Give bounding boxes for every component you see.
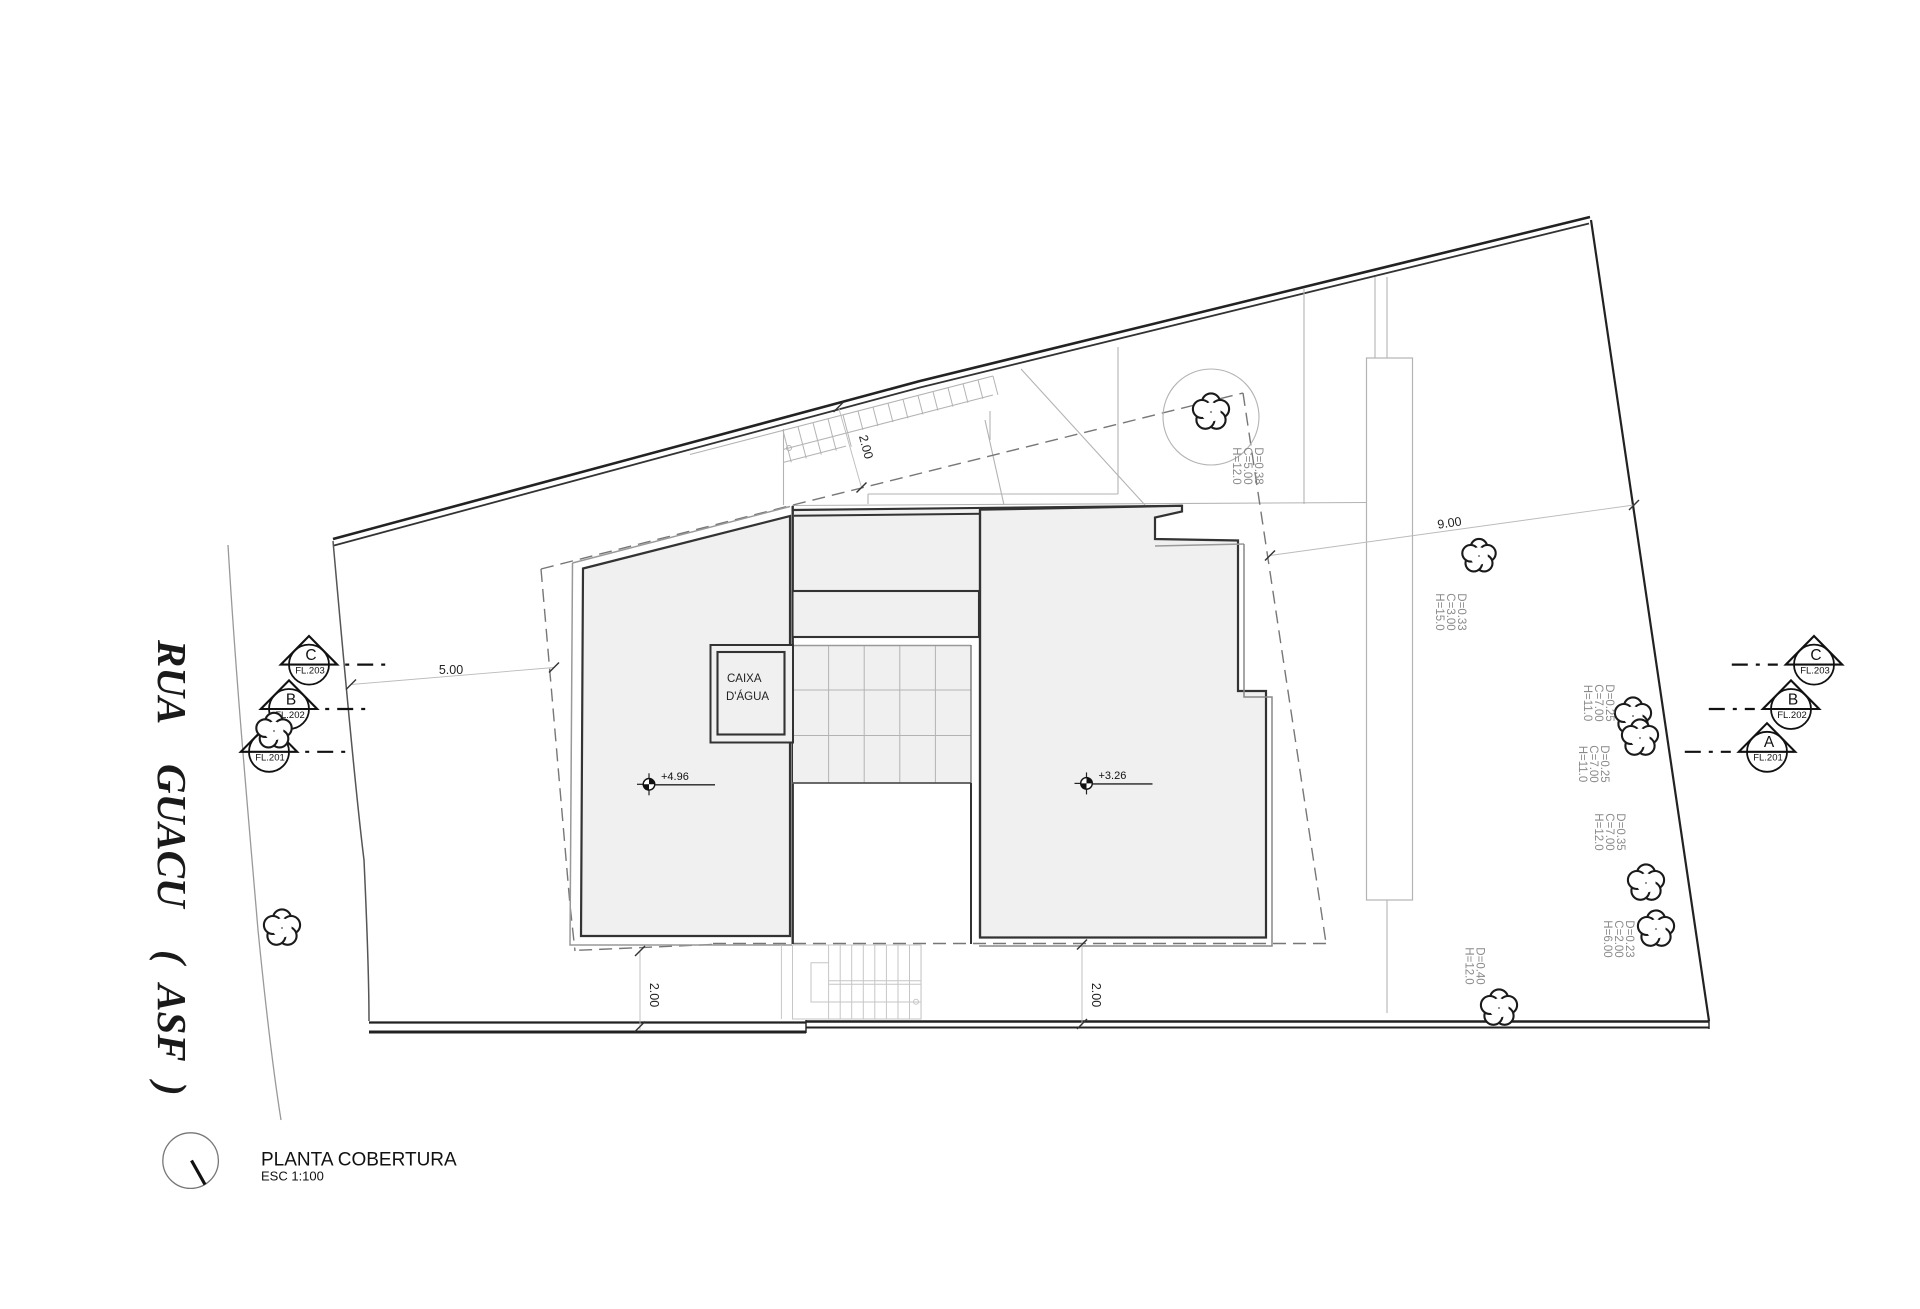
svg-text:D=0.35C=7.00H=12.0: D=0.35C=7.00H=12.0	[1592, 813, 1626, 850]
svg-text:FL.201: FL.201	[1753, 753, 1783, 764]
svg-text:FL.203: FL.203	[295, 666, 325, 677]
svg-text:FL.202: FL.202	[1777, 710, 1807, 721]
svg-text:B: B	[286, 691, 296, 708]
svg-text:B: B	[1788, 691, 1798, 708]
svg-text:D=0.25C=7.00H=11.0: D=0.25C=7.00H=11.0	[1581, 684, 1615, 721]
svg-text:+3.26: +3.26	[1099, 770, 1127, 782]
svg-text:D=0.40H=12.0: D=0.40H=12.0	[1463, 947, 1486, 984]
svg-text:D=0.25C=7.00H=11.0: D=0.25C=7.00H=11.0	[1576, 745, 1610, 782]
svg-text:FL.203: FL.203	[1800, 666, 1830, 677]
svg-text:D'ÁGUA: D'ÁGUA	[726, 690, 769, 703]
svg-text:FL.201: FL.201	[255, 753, 285, 764]
svg-text:C: C	[305, 647, 316, 664]
svg-text:PLANTA COBERTURA: PLANTA COBERTURA	[261, 1150, 457, 1171]
svg-text:D=0.23C=2.00H=6.00: D=0.23C=2.00H=6.00	[1601, 920, 1635, 957]
svg-text:C: C	[1810, 647, 1821, 664]
svg-text:A: A	[1764, 734, 1775, 751]
svg-text:5.00: 5.00	[439, 663, 463, 677]
svg-text:D=0.38C=5.00H=12.0: D=0.38C=5.00H=12.0	[1230, 447, 1264, 484]
svg-text:CAIXA: CAIXA	[727, 673, 762, 685]
svg-text:RUAGUACU( ASF ): RUAGUACU( ASF )	[149, 639, 195, 1096]
svg-text:D=0.33C=3.00H=15.0: D=0.33C=3.00H=15.0	[1433, 593, 1467, 630]
svg-text:2.00: 2.00	[856, 433, 876, 460]
svg-text:2.00: 2.00	[1089, 983, 1103, 1007]
svg-text:2.00: 2.00	[647, 983, 661, 1007]
svg-text:ESC 1:100: ESC 1:100	[261, 1169, 324, 1184]
svg-text:+4.96: +4.96	[661, 771, 689, 783]
